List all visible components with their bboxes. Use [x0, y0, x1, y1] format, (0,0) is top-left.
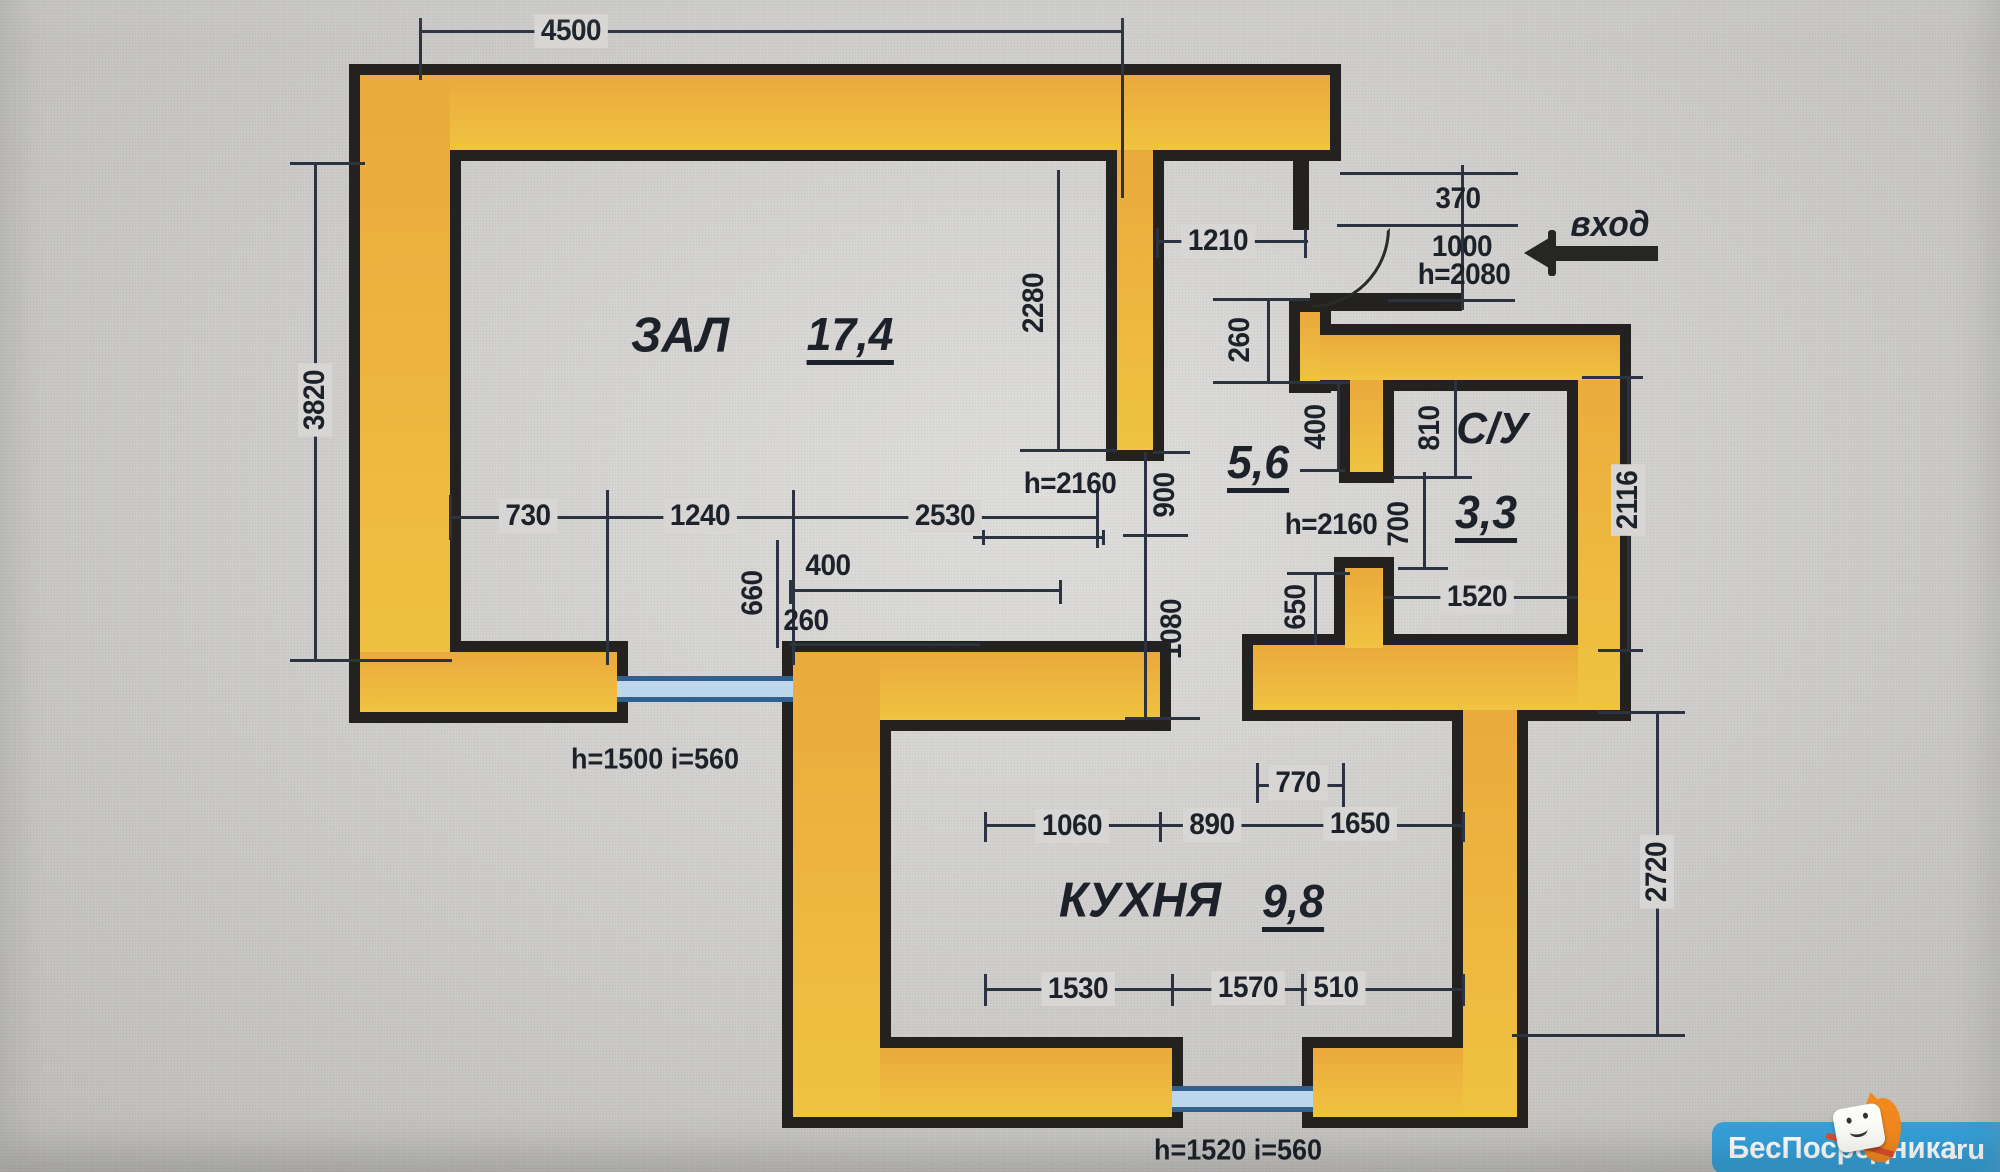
dimension-line [290, 162, 365, 165]
dimension-line [1156, 228, 1159, 258]
dimension-line [790, 643, 980, 646]
dimension-line [1123, 534, 1188, 537]
dim-370: 370 [1435, 184, 1480, 214]
dim-890: 890 [1183, 808, 1241, 842]
dimension-line [1512, 1034, 1685, 1037]
dimension-line [789, 580, 792, 604]
dimension-line [1337, 382, 1340, 470]
window-kitchen-label: h=1520 i=560 [1154, 1137, 1322, 1166]
room-hallway-area: 5,6 [1227, 439, 1289, 493]
dimension-line [1462, 974, 1465, 1006]
dimension-line [984, 974, 987, 1006]
wall-fill [1253, 645, 1620, 710]
dimension-line [1582, 376, 1643, 379]
dimension-line [982, 530, 985, 545]
dimension-line [1256, 763, 1259, 803]
watermark-tld-text: .ru [1948, 1134, 1985, 1167]
dimension-line [1304, 228, 1307, 258]
dimension-line [1171, 974, 1174, 1006]
dimension-line [1337, 224, 1518, 227]
dim-4500: 4500 [534, 14, 607, 48]
dimension-line [1598, 649, 1643, 652]
dimension-line [1423, 472, 1426, 568]
dim-400-hall: 400 [1301, 404, 1331, 449]
dim-400-niche: 400 [805, 551, 850, 581]
dimension-line [1388, 299, 1515, 302]
entry-arrow-head [1524, 235, 1554, 271]
wall-fill [1463, 700, 1517, 1117]
wall-fill [793, 652, 880, 1117]
dimension-line [420, 30, 1122, 33]
photo-vignette [0, 0, 2000, 1172]
room-zal-label: ЗАЛ [631, 312, 729, 361]
dim-510: 510 [1307, 971, 1365, 1005]
window-glass [1172, 1086, 1313, 1112]
dim-1530: 1530 [1041, 972, 1114, 1006]
dimension-line [449, 495, 452, 540]
dim-2280: 2280 [1019, 273, 1049, 333]
dimension-line [606, 490, 609, 665]
dimension-line [776, 540, 779, 648]
dimension-line [1314, 573, 1317, 645]
dimension-line [1301, 974, 1304, 1006]
dim-260-hall: 260 [1225, 317, 1255, 362]
wall-fill [360, 75, 1330, 150]
room-kitchen-label: КУХНЯ [1059, 877, 1221, 926]
dim-1210: 1210 [1181, 224, 1254, 258]
dimension-line [1598, 711, 1685, 714]
room-bathroom-label: С/У [1456, 407, 1528, 451]
dim-900: 900 [1150, 472, 1180, 517]
wall-fill [1345, 568, 1383, 648]
dimension-line [1020, 449, 1117, 452]
dimension-line [1102, 530, 1105, 545]
dimension-line [1340, 172, 1518, 175]
dim-650: 650 [1281, 584, 1311, 629]
room-bathroom-area: 3,3 [1455, 489, 1517, 543]
dim-660: 660 [738, 570, 768, 615]
dimension-line [1153, 451, 1190, 454]
dim-1570: 1570 [1211, 971, 1284, 1005]
dimension-line [792, 490, 795, 665]
dim-zal-door-height: h=2160 [1024, 469, 1117, 499]
dimension-line [790, 589, 1060, 592]
dimension-line [1462, 812, 1465, 842]
dimension-line [1213, 381, 1350, 384]
wall-fill [1300, 335, 1620, 380]
dimension-line [1057, 170, 1060, 450]
dim-1060: 1060 [1035, 809, 1108, 843]
dim-2116: 2116 [1611, 464, 1645, 536]
window-glass [617, 676, 793, 702]
dim-su-door-height: h=2160 [1285, 510, 1378, 540]
dimension-line [1159, 812, 1162, 842]
dim-700: 700 [1384, 501, 1414, 546]
dim-810: 810 [1415, 405, 1445, 450]
room-kitchen-area: 9,8 [1262, 878, 1324, 932]
dimension-line [1144, 452, 1147, 720]
dim-770: 770 [1269, 766, 1327, 800]
dimension-line [1059, 580, 1062, 604]
watermark-mascot-icon [1833, 1094, 1905, 1170]
dim-1240: 1240 [663, 499, 736, 533]
wall-thin [1293, 150, 1309, 230]
dimension-line [973, 536, 1103, 539]
entry-arrow-body [1552, 246, 1658, 261]
dimension-line [1213, 298, 1310, 301]
wall-fill [880, 1048, 1172, 1117]
dim-entry-door-height: h=2080 [1418, 260, 1511, 290]
dimension-line [1287, 572, 1350, 575]
dim-1520: 1520 [1440, 580, 1513, 614]
dimension-line [1121, 18, 1124, 198]
dim-1650: 1650 [1323, 807, 1396, 841]
dimension-line [984, 812, 987, 842]
dimension-line [419, 18, 422, 80]
dimension-line [1392, 476, 1472, 479]
dimension-line [1125, 717, 1200, 720]
dimension-line [1267, 300, 1270, 382]
dim-2530: 2530 [908, 499, 981, 533]
dim-2720: 2720 [1640, 835, 1674, 908]
wall-fill [1300, 312, 1320, 382]
window-zal-label: h=1500 i=560 [571, 746, 739, 775]
room-zal-area: 17,4 [807, 311, 894, 365]
entry-label: вход [1570, 206, 1649, 242]
dim-730: 730 [499, 499, 557, 533]
wall-fill [1350, 380, 1383, 472]
dim-3820: 3820 [298, 363, 332, 436]
wall-fill [360, 75, 450, 712]
dim-260-niche: 260 [783, 606, 828, 636]
dim-1080: 1080 [1157, 599, 1187, 659]
floor-plan: 4500 3820 1210 370 1000 h=2080 вход ЗАЛ … [0, 0, 2000, 1172]
